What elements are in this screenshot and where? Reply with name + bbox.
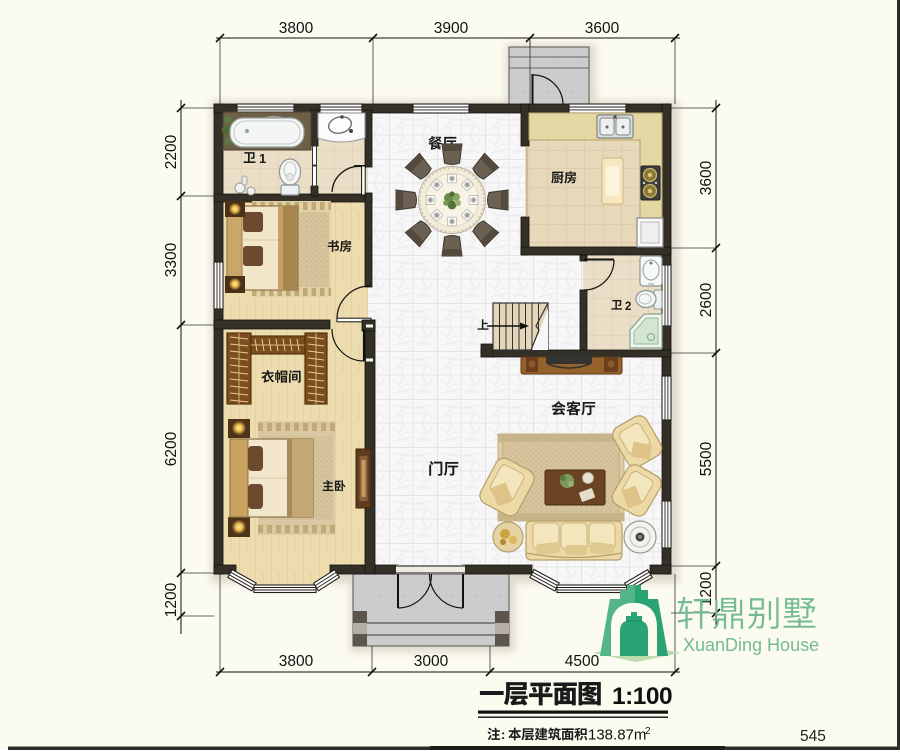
- svg-text:3800: 3800: [279, 653, 314, 670]
- svg-text:545: 545: [800, 728, 826, 745]
- svg-text:2600: 2600: [698, 282, 715, 317]
- svg-text:3300: 3300: [163, 242, 180, 277]
- svg-text:4500: 4500: [565, 653, 600, 670]
- svg-text:2: 2: [625, 301, 631, 313]
- svg-text:3600: 3600: [585, 20, 620, 37]
- svg-text:3900: 3900: [434, 20, 469, 37]
- svg-text:2200: 2200: [163, 134, 180, 169]
- svg-text:6200: 6200: [163, 431, 180, 466]
- svg-text:3800: 3800: [279, 20, 314, 37]
- svg-text:138.87m: 138.87m: [588, 727, 646, 744]
- svg-text:3600: 3600: [698, 160, 715, 195]
- svg-text:3000: 3000: [414, 653, 449, 670]
- svg-text:1:100: 1:100: [612, 683, 672, 710]
- svg-text:XuanDing House: XuanDing House: [683, 635, 819, 655]
- svg-text:2: 2: [645, 726, 651, 737]
- svg-text:5500: 5500: [698, 441, 715, 476]
- svg-text::: :: [501, 727, 505, 742]
- svg-text:1: 1: [259, 151, 266, 166]
- svg-text:1200: 1200: [163, 582, 180, 617]
